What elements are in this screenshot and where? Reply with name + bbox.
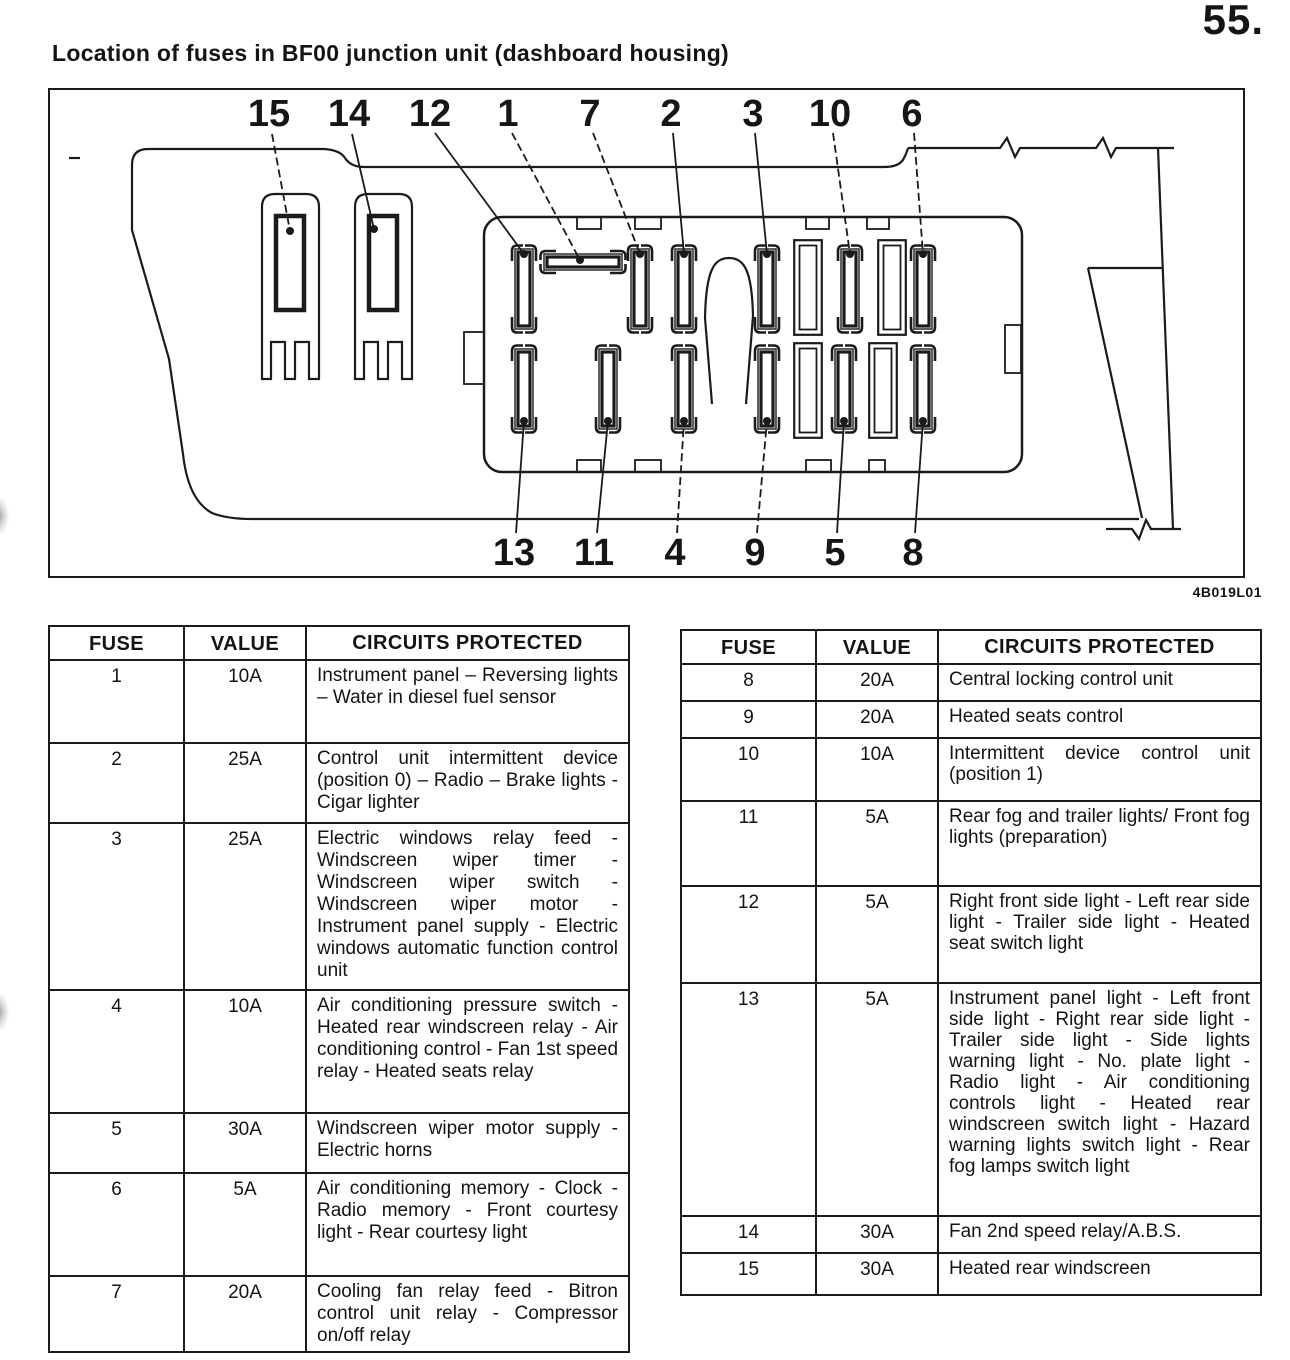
table-row: 2 25A Control unit intermittent device (… [49,743,629,823]
value-cell: 30A [184,1113,306,1173]
callout-13: 13 [493,532,535,574]
page-title: Location of fuses in BF00 junction unit … [52,40,729,67]
value-cell: 5A [816,801,938,886]
value-cell: 30A [816,1253,938,1295]
table-row: 9 20A Heated seats control [681,701,1261,738]
fuse-table-left: FUSE VALUE CIRCUITS PROTECTED 1 10A Inst… [48,625,630,1353]
table-row: 1 10A Instrument panel – Reversing light… [49,660,629,743]
manual-page: { "page": { "number": "55.", "title": "L… [0,0,1290,1360]
table-row: 3 25A Electric windows relay feed - Wind… [49,823,629,990]
table-row: 4 10A Air conditioning pressure switch -… [49,990,629,1113]
callout-11: 11 [574,532,614,574]
circuits-cell: Air conditioning pressure switch - Heate… [306,990,629,1113]
fuse-location-figure: 15 14 12 1 7 2 3 10 6 13 11 4 9 5 8 [48,88,1245,578]
table-row: 13 5A Instrument panel light - Left fron… [681,983,1261,1216]
fuse-cell: 3 [49,823,184,990]
callout-9: 9 [744,532,765,574]
fuse-cell: 5 [49,1113,184,1173]
fuse-cell: 8 [681,664,816,701]
relay-slot-15 [262,194,319,379]
scan-smudge [0,993,9,1031]
figure-code: 4B019L01 [1193,584,1262,600]
circuits-cell: Central locking control unit [938,664,1261,701]
callout-3: 3 [742,93,763,135]
col-header-value: VALUE [816,630,938,664]
fuse-cell: 9 [681,701,816,738]
callout-10: 10 [809,93,851,135]
col-header-fuse: FUSE [49,626,184,660]
callout-12: 12 [409,93,451,135]
circuits-cell: Rear fog and trailer lights/ Front fog l… [938,801,1261,886]
col-header-fuse: FUSE [681,630,816,664]
fuse-table-right: FUSE VALUE CIRCUITS PROTECTED 8 20A Cent… [680,629,1262,1296]
fuse-cell: 6 [49,1173,184,1276]
callout-2: 2 [660,93,681,135]
value-cell: 25A [184,743,306,823]
right-tab [1005,325,1021,373]
keystone-guide [705,258,753,404]
table-row: 14 30A Fan 2nd speed relay/A.B.S. [681,1216,1261,1253]
table-row: 10 10A Intermittent device control unit … [681,738,1261,801]
circuits-cell: Fan 2nd speed relay/A.B.S. [938,1216,1261,1253]
left-tab [464,332,484,384]
table-row: 8 20A Central locking control unit [681,664,1261,701]
fuse-cell: 10 [681,738,816,801]
table-row: 15 30A Heated rear windscreen [681,1253,1261,1295]
callout-8: 8 [902,532,923,574]
fuse-cell: 11 [681,801,816,886]
value-cell: 5A [816,886,938,983]
circuits-cell: Intermittent device control unit (positi… [938,738,1261,801]
table-row: 12 5A Right front side light - Left rear… [681,886,1261,983]
value-cell: 10A [184,990,306,1113]
circuits-cell: Windscreen wiper motor supply - Electric… [306,1113,629,1173]
circuits-cell: Instrument panel – Reversing lights – Wa… [306,660,629,743]
fuse-cell: 15 [681,1253,816,1295]
circuits-cell: Instrument panel light - Left front side… [938,983,1261,1216]
value-cell: 30A [816,1216,938,1253]
table-row: 11 5A Rear fog and trailer lights/ Front… [681,801,1261,886]
value-cell: 10A [184,660,306,743]
table-header-row: FUSE VALUE CIRCUITS PROTECTED [681,630,1261,664]
circuits-cell: Heated seats control [938,701,1261,738]
fuse-box-diagram: 15 14 12 1 7 2 3 10 6 13 11 4 9 5 8 [50,90,1247,580]
circuits-cell: Right front side light - Left rear side … [938,886,1261,983]
value-cell: 20A [816,701,938,738]
callout-7: 7 [579,93,600,135]
page-number: 55. [1203,0,1264,44]
fuse-cell: 2 [49,743,184,823]
circuits-cell: Control unit intermittent device (positi… [306,743,629,823]
circuits-cell: Air conditioning memory - Clock - Radio … [306,1173,629,1276]
fuse-cell: 7 [49,1276,184,1352]
callout-6: 6 [901,93,922,135]
table-header-row: FUSE VALUE CIRCUITS PROTECTED [49,626,629,660]
value-cell: 25A [184,823,306,990]
scan-smudge [0,497,9,535]
circuits-cell: Heated rear windscreen [938,1253,1261,1295]
table-row: 7 20A Cooling fan relay feed - Bitron co… [49,1276,629,1352]
callout-4: 4 [664,532,685,574]
value-cell: 5A [184,1173,306,1276]
value-cell: 20A [184,1276,306,1352]
callout-dots [286,225,927,425]
fuse-cell: 1 [49,660,184,743]
circuits-cell: Cooling fan relay feed - Bitron control … [306,1276,629,1352]
value-cell: 10A [816,738,938,801]
fuse-cell: 13 [681,983,816,1216]
callout-1: 1 [497,93,518,135]
callout-5: 5 [824,532,845,574]
value-cell: 20A [816,664,938,701]
table-row: 5 30A Windscreen wiper motor supply - El… [49,1113,629,1173]
table-row: 6 5A Air conditioning memory - Clock - R… [49,1173,629,1276]
relay-slot-14 [355,194,412,379]
fuse-cell: 4 [49,990,184,1113]
callout-14: 14 [328,93,370,135]
col-header-circuits: CIRCUITS PROTECTED [306,626,629,660]
callout-15: 15 [248,93,290,135]
fuse-cell: 12 [681,886,816,983]
circuits-cell: Electric windows relay feed - Windscreen… [306,823,629,990]
fuse-block [464,217,1022,472]
fuse-cell: 14 [681,1216,816,1253]
col-header-value: VALUE [184,626,306,660]
value-cell: 5A [816,983,938,1216]
break-lines [908,138,1181,539]
col-header-circuits: CIRCUITS PROTECTED [938,630,1261,664]
